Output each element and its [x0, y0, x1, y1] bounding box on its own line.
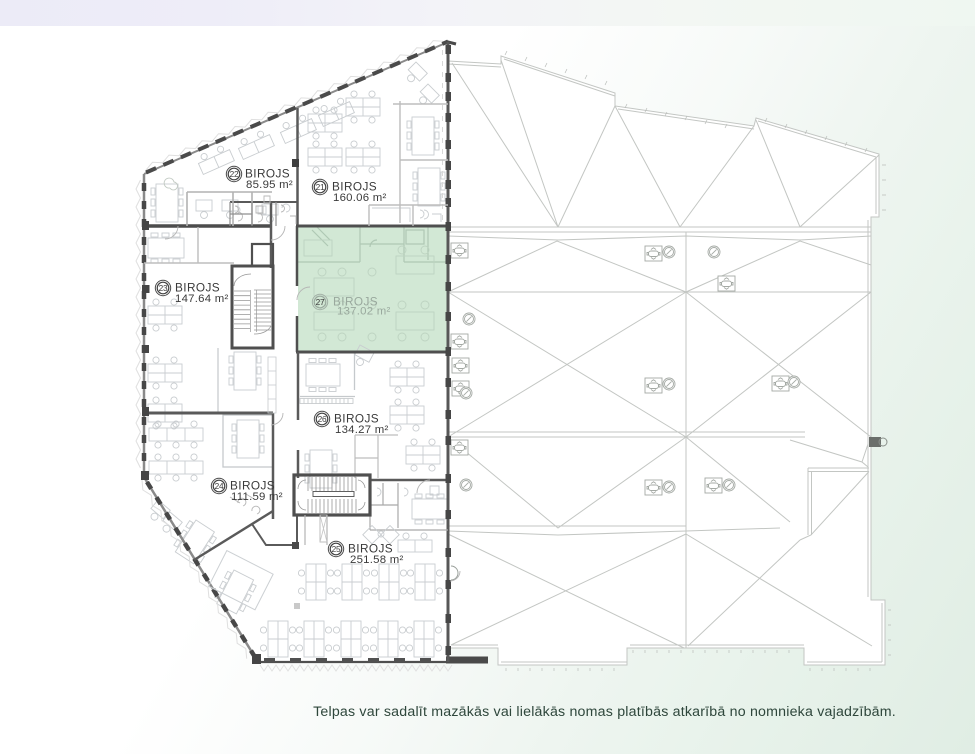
- svg-text:27: 27: [316, 297, 325, 307]
- svg-text:251.58 m²: 251.58 m²: [350, 554, 404, 566]
- svg-text:160.06 m²: 160.06 m²: [333, 192, 387, 204]
- svg-text:23: 23: [159, 283, 168, 293]
- svg-text:85.95 m²: 85.95 m²: [246, 179, 293, 191]
- svg-text:22: 22: [230, 169, 239, 179]
- svg-text:137.02 m²: 137.02 m²: [337, 306, 391, 318]
- svg-text:147.64 m²: 147.64 m²: [175, 293, 229, 305]
- svg-text:134.27 m²: 134.27 m²: [335, 424, 389, 436]
- svg-text:24: 24: [215, 481, 224, 491]
- svg-text:25: 25: [332, 544, 341, 554]
- svg-text:111.59 m²: 111.59 m²: [231, 491, 283, 503]
- svg-text:21: 21: [316, 182, 325, 192]
- svg-text:26: 26: [318, 414, 327, 424]
